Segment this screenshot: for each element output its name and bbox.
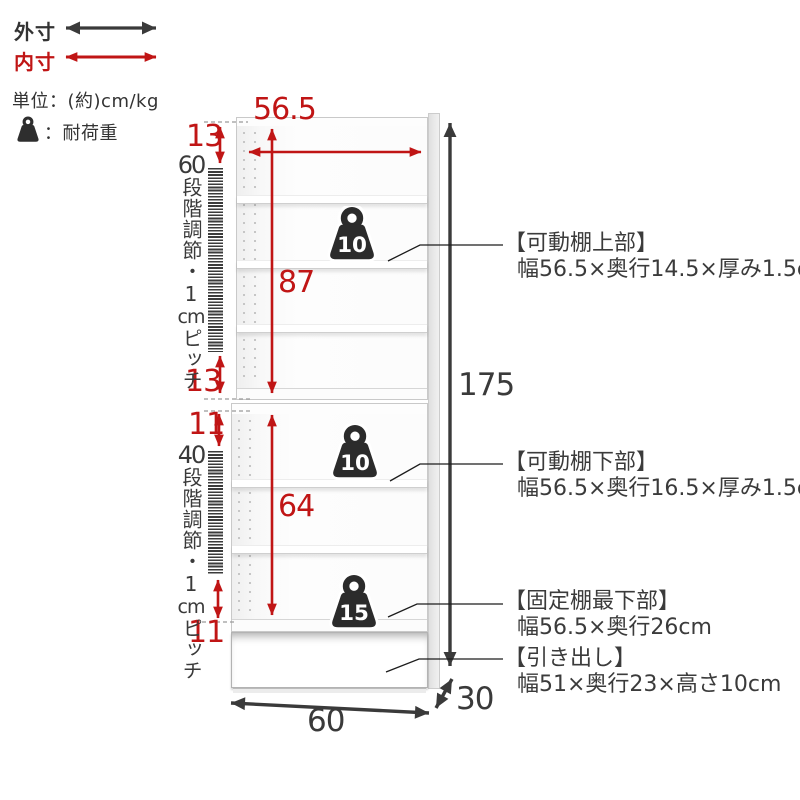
legend-units-label: 単位：(約)cm/kg bbox=[12, 87, 159, 113]
dim-lower-top-gap: 11 bbox=[188, 410, 224, 440]
shelf-pin-holes bbox=[249, 420, 251, 615]
load-badge-value: 15 bbox=[339, 601, 369, 626]
legend-outer-dimension-label: 外寸 bbox=[14, 16, 56, 45]
cabinet-side-panel bbox=[428, 113, 440, 689]
movable-shelf bbox=[237, 324, 427, 333]
shelf-pin-holes bbox=[254, 132, 256, 383]
annotation-fixed-shelf-title: 【固定棚最下部】 bbox=[504, 590, 680, 614]
annotation-movable-shelf-lower-detail: 幅56.5×奥行16.5×厚み1.5cm bbox=[517, 477, 800, 501]
dim-base-width: 60 bbox=[307, 706, 344, 737]
lower-steps-unit: cm bbox=[178, 598, 205, 617]
movable-shelf bbox=[232, 545, 427, 554]
dim-upper-inner-height: 87 bbox=[278, 268, 314, 298]
lower-steps-text: 段階調節・1 bbox=[181, 467, 201, 597]
drawer-front bbox=[231, 632, 428, 688]
legend-load-capacity-label: ：耐荷重 bbox=[44, 119, 118, 145]
legend-inner-dimension-label: 内寸 bbox=[14, 46, 56, 75]
dim-shelf-inner-width: 56.5 bbox=[253, 95, 316, 125]
lower-steps-pitch: ピッチ bbox=[181, 618, 201, 681]
cabinet-base bbox=[233, 688, 426, 693]
load-badge-value: 10 bbox=[337, 233, 367, 258]
load-badge-lower: 10 bbox=[327, 424, 383, 482]
weight-icon bbox=[14, 116, 42, 144]
shelf-pin-holes bbox=[243, 132, 245, 383]
load-badge-value: 10 bbox=[340, 451, 370, 476]
upper-steps-count: 60 bbox=[178, 153, 205, 177]
dim-total-height: 175 bbox=[458, 370, 514, 401]
lower-steps-count: 40 bbox=[178, 443, 205, 467]
annotation-movable-shelf-upper-title: 【可動棚上部】 bbox=[504, 232, 658, 256]
upper-pitch-ruler bbox=[208, 168, 223, 352]
upper-bottom-board bbox=[237, 388, 427, 399]
annotation-fixed-shelf-detail: 幅56.5×奥行26cm bbox=[517, 616, 712, 640]
upper-steps-pitch: ピッチ bbox=[181, 328, 201, 391]
dim-upper-top-gap: 13 bbox=[186, 122, 222, 152]
lower-pitch-ruler bbox=[208, 451, 223, 575]
product-dimension-diagram: { "legend": { "outer_dim_label": "外寸", "… bbox=[0, 0, 800, 800]
annotation-drawer-title: 【引き出し】 bbox=[504, 647, 636, 671]
shelf-pin-holes bbox=[238, 420, 240, 615]
load-badge-upper: 10 bbox=[324, 206, 380, 264]
load-badge-bottom: 15 bbox=[326, 574, 382, 632]
annotation-drawer-detail: 幅51×奥行23×高さ10cm bbox=[517, 673, 781, 697]
upper-steps-text: 段階調節・1 bbox=[181, 177, 201, 307]
lower-adjustment-note: 40 段階調節・1 cm ピッチ bbox=[174, 443, 208, 681]
upper-steps-unit: cm bbox=[178, 308, 205, 327]
movable-shelf bbox=[237, 195, 427, 204]
annotation-movable-shelf-upper-detail: 幅56.5×奥行14.5×厚み1.5cm bbox=[517, 258, 800, 282]
dim-base-depth: 30 bbox=[456, 684, 493, 715]
upper-adjustment-note: 60 段階調節・1 cm ピッチ bbox=[174, 153, 208, 391]
dim-lower-inner-height: 64 bbox=[278, 492, 314, 522]
annotation-movable-shelf-lower-title: 【可動棚下部】 bbox=[504, 451, 658, 475]
